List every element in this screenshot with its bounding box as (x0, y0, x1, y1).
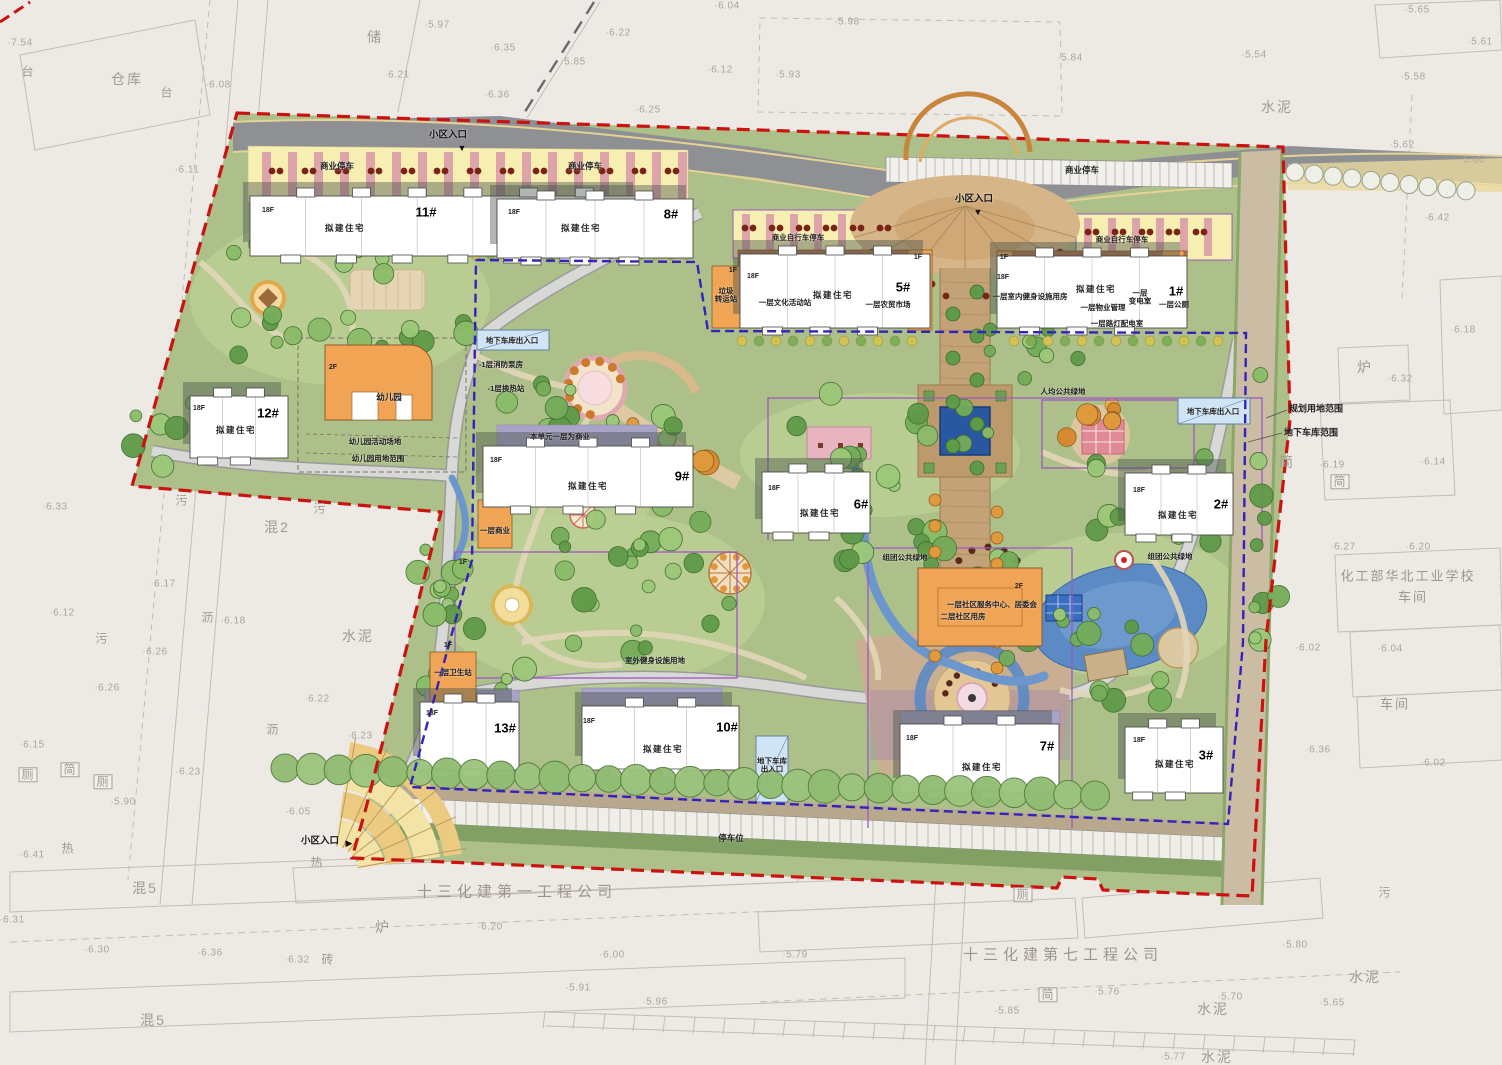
plan-graphics (0, 0, 1502, 1065)
site-plan-drawing: 规划用地范围 地下车库范围 18F拟建住宅11#18F拟建住宅8#18F拟建住宅… (0, 0, 1502, 1065)
